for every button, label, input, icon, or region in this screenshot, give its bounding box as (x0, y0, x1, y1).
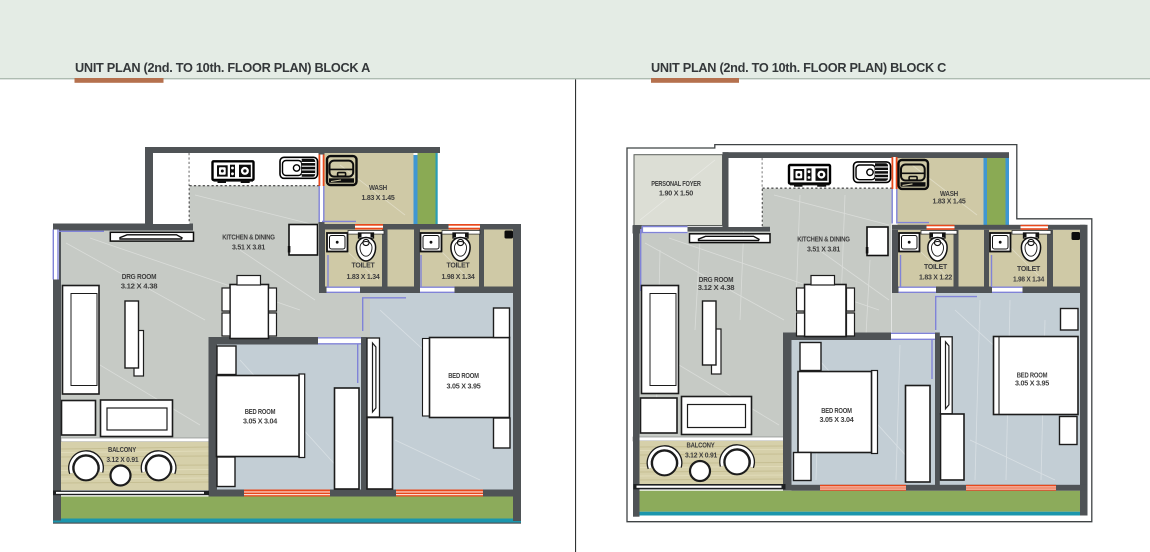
svg-text:1.83 X 1.45: 1.83 X 1.45 (933, 199, 966, 206)
svg-text:KITCHEN & DINING: KITCHEN & DINING (797, 237, 850, 244)
svg-text:BED ROOM: BED ROOM (821, 408, 852, 415)
svg-text:TOILET: TOILET (352, 263, 376, 270)
svg-text:BALCONY: BALCONY (687, 443, 715, 450)
svg-text:3.12 X 4.38: 3.12 X 4.38 (121, 284, 158, 291)
svg-text:BALCONY: BALCONY (108, 447, 136, 454)
svg-text:3.12 X 0.91: 3.12 X 0.91 (685, 453, 717, 460)
svg-text:3.05 X 3.95: 3.05 X 3.95 (447, 384, 481, 391)
svg-text:1.83 X 1.22: 1.83 X 1.22 (919, 275, 952, 282)
svg-text:KITCHEN & DINING: KITCHEN & DINING (222, 235, 275, 242)
svg-text:BED ROOM: BED ROOM (1017, 373, 1048, 380)
svg-text:TOILET: TOILET (1017, 266, 1041, 273)
svg-text:3.05 X 3.95: 3.05 X 3.95 (1015, 381, 1049, 388)
svg-text:DRG ROOM: DRG ROOM (122, 274, 157, 281)
svg-text:3.12 X 4.38: 3.12 X 4.38 (698, 285, 735, 292)
svg-text:1.83 X 1.34: 1.83 X 1.34 (347, 274, 380, 281)
svg-text:WASH: WASH (940, 191, 958, 198)
svg-text:TOILET: TOILET (447, 263, 471, 270)
svg-text:WASH: WASH (369, 185, 387, 192)
svg-text:3.12 X 0.91: 3.12 X 0.91 (106, 457, 138, 464)
svg-text:TOILET: TOILET (924, 264, 948, 271)
svg-text:BED ROOM: BED ROOM (448, 373, 479, 380)
svg-text:1.83 X 1.45: 1.83 X 1.45 (362, 195, 395, 202)
svg-text:3.51 X 3.81: 3.51 X 3.81 (232, 245, 265, 252)
svg-text:DRG ROOM: DRG ROOM (699, 277, 734, 284)
svg-text:3.05 X 3.04: 3.05 X 3.04 (243, 419, 277, 426)
svg-text:1.98 X 1.34: 1.98 X 1.34 (1013, 277, 1044, 284)
svg-text:1.90 X 1.50: 1.90 X 1.50 (659, 191, 693, 198)
svg-text:BED ROOM: BED ROOM (245, 409, 276, 416)
svg-text:UNIT PLAN (2nd. TO 10th. FLOOR: UNIT PLAN (2nd. TO 10th. FLOOR PLAN) BLO… (651, 60, 947, 75)
svg-text:UNIT PLAN (2nd. TO 10th. FLOOR: UNIT PLAN (2nd. TO 10th. FLOOR PLAN) BLO… (75, 60, 371, 75)
svg-text:1.98 X 1.34: 1.98 X 1.34 (442, 274, 475, 281)
svg-text:PERSONAL FOYER: PERSONAL FOYER (651, 181, 701, 188)
svg-text:3.05 X 3.04: 3.05 X 3.04 (820, 417, 854, 424)
svg-text:3.51 X 3.81: 3.51 X 3.81 (807, 247, 840, 254)
